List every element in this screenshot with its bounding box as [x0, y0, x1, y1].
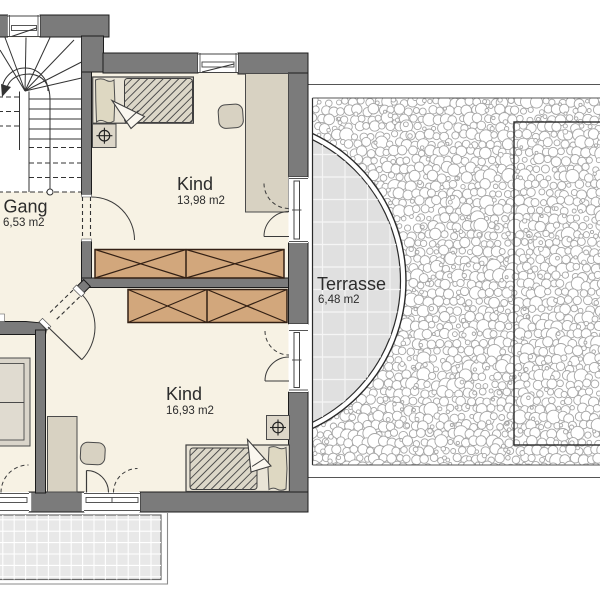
svg-text:6,53 m2: 6,53 m2 — [3, 217, 45, 229]
svg-text:13,98 m2: 13,98 m2 — [177, 195, 225, 207]
svg-text:Kind: Kind — [177, 174, 213, 194]
svg-text:16,93 m2: 16,93 m2 — [166, 405, 214, 417]
svg-text:Terrasse: Terrasse — [317, 274, 386, 294]
svg-text:Kind: Kind — [166, 384, 202, 404]
svg-text:6,48 m2: 6,48 m2 — [318, 294, 360, 306]
svg-text:Gang: Gang — [4, 197, 48, 217]
